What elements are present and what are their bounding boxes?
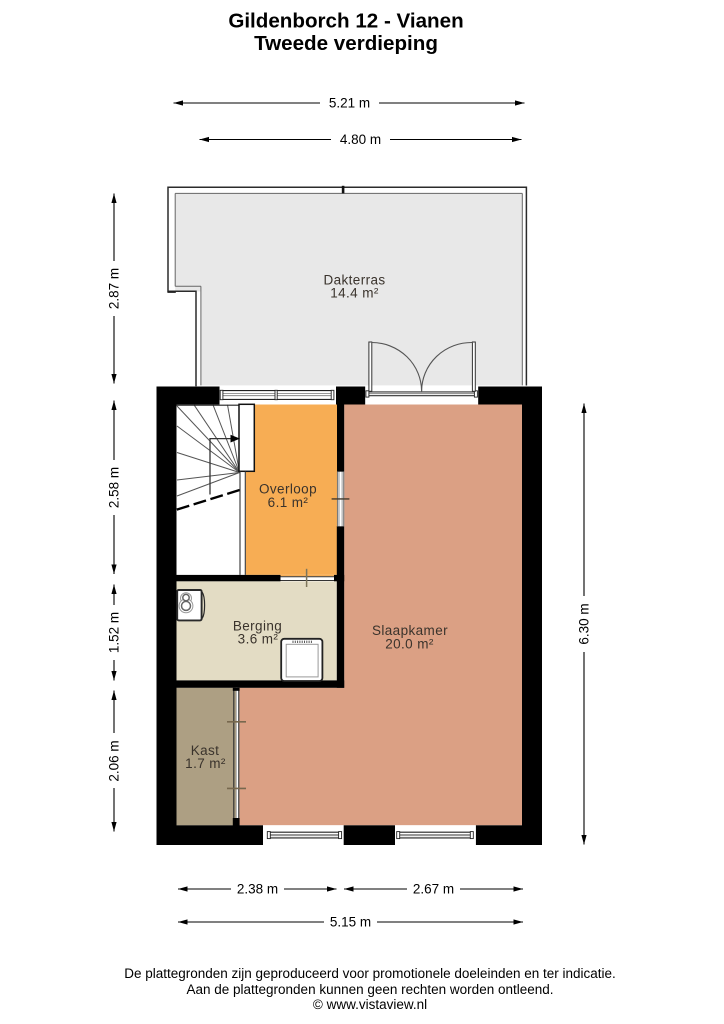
- svg-text:Tweede verdieping: Tweede verdieping: [254, 32, 438, 55]
- svg-text:2.67 m: 2.67 m: [413, 882, 454, 897]
- svg-text:1.52 m: 1.52 m: [107, 612, 122, 653]
- svg-text:3.6 m²: 3.6 m²: [238, 632, 279, 647]
- svg-text:5.15 m: 5.15 m: [330, 915, 371, 930]
- svg-text:20.0 m²: 20.0 m²: [385, 636, 434, 651]
- svg-text:Aan de plattegronden kunnen ge: Aan de plattegronden kunnen geen rechten…: [186, 982, 553, 997]
- svg-text:2.58 m: 2.58 m: [107, 467, 122, 508]
- svg-text:6.1 m²: 6.1 m²: [268, 495, 309, 510]
- svg-text:Gildenborch 12 - Vianen: Gildenborch 12 - Vianen: [228, 10, 463, 33]
- svg-text:4.80 m: 4.80 m: [340, 132, 381, 147]
- svg-text:De plattegronden zijn geproduc: De plattegronden zijn geproduceerd voor …: [124, 966, 616, 981]
- svg-text:2.06 m: 2.06 m: [107, 740, 122, 781]
- svg-text:2.87 m: 2.87 m: [107, 268, 122, 309]
- svg-text:© www.vistaview.nl: © www.vistaview.nl: [313, 997, 427, 1012]
- svg-text:6.30 m: 6.30 m: [577, 603, 592, 644]
- svg-text:5.21 m: 5.21 m: [329, 96, 370, 111]
- svg-text:1.7 m²: 1.7 m²: [185, 756, 226, 771]
- svg-text:2.38 m: 2.38 m: [237, 882, 278, 897]
- svg-text:14.4 m²: 14.4 m²: [330, 285, 379, 300]
